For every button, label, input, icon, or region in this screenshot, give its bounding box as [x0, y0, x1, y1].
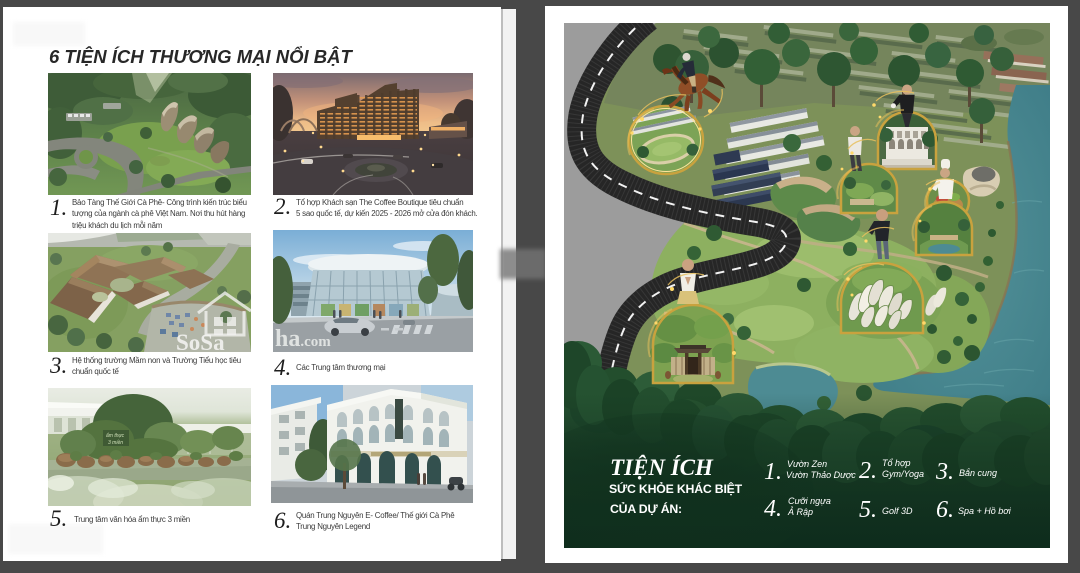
- svg-text:1.: 1.: [764, 459, 782, 485]
- svg-text:Cưỡi ngựa: Cưỡi ngựa: [788, 496, 831, 506]
- svg-text:Vườn Zen: Vườn Zen: [787, 459, 827, 469]
- svg-text:Golf 3D: Golf 3D: [882, 506, 913, 516]
- svg-text:SỨC KHỎE KHÁC BIỆT: SỨC KHỎE KHÁC BIỆT: [609, 481, 743, 496]
- svg-text:4.: 4.: [764, 496, 782, 522]
- svg-text:Spa + Hồ bơi: Spa + Hồ bơi: [958, 506, 1012, 516]
- svg-text:SoSa: SoSa: [176, 330, 225, 352]
- svg-text:3 miền: 3 miền: [108, 440, 123, 446]
- svg-text:Bắn cung: Bắn cung: [959, 468, 997, 478]
- svg-text:Vườn Thảo Dược: Vườn Thảo Dược: [786, 470, 856, 480]
- svg-text:Gym/Yoga: Gym/Yoga: [882, 469, 924, 479]
- svg-text:6.: 6.: [936, 497, 954, 523]
- svg-text:3.: 3.: [935, 459, 954, 485]
- svg-text:2.: 2.: [859, 458, 877, 484]
- svg-text:Ả Rập: Ả Rập: [787, 506, 813, 517]
- svg-text:TIỆN ÍCH: TIỆN ÍCH: [610, 455, 714, 480]
- svg-text:5.: 5.: [859, 497, 877, 523]
- svg-text:ẩm thực: ẩm thực: [106, 432, 125, 439]
- svg-text:CỦA DỰ ÁN:: CỦA DỰ ÁN:: [610, 501, 682, 516]
- svg-text:Tổ hợp: Tổ hợp: [882, 458, 910, 468]
